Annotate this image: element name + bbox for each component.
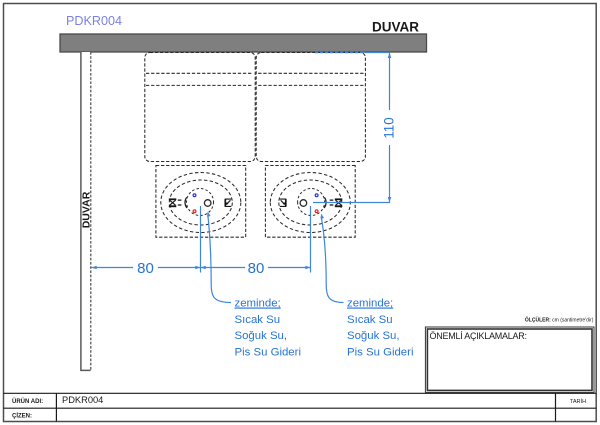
svg-text:zeminde;: zeminde; [347, 298, 393, 310]
svg-text:Pis Su Gideri: Pis Su Gideri [347, 346, 413, 358]
svg-text:TARİH: TARİH [570, 398, 586, 405]
svg-text:Pis Su Gideri: Pis Su Gideri [235, 346, 301, 358]
svg-text:80: 80 [137, 260, 154, 277]
svg-text:110: 110 [382, 117, 397, 138]
svg-text:DUVAR: DUVAR [372, 20, 419, 35]
svg-text:Sıcak Su: Sıcak Su [347, 314, 393, 326]
svg-text:PDKR004: PDKR004 [62, 395, 103, 405]
svg-text:DUVAR: DUVAR [80, 191, 92, 228]
svg-text:Soğuk Su,: Soğuk Su, [235, 330, 288, 342]
svg-text:ÜRÜN ADI:: ÜRÜN ADI: [12, 398, 43, 405]
svg-text:ÇİZEN:: ÇİZEN: [12, 412, 32, 419]
svg-text:ÖLÇÜLER: cm (santimetre'dir): ÖLÇÜLER: cm (santimetre'dir) [525, 317, 594, 324]
svg-text:zeminde;: zeminde; [235, 298, 281, 310]
svg-text:80: 80 [248, 260, 265, 277]
svg-text:PDKR004: PDKR004 [66, 14, 122, 28]
svg-text:Soğuk Su,: Soğuk Su, [347, 330, 400, 342]
svg-text:ÖNEMLİ AÇIKLAMALAR:: ÖNEMLİ AÇIKLAMALAR: [430, 331, 527, 341]
svg-text:Sıcak Su: Sıcak Su [235, 314, 281, 326]
